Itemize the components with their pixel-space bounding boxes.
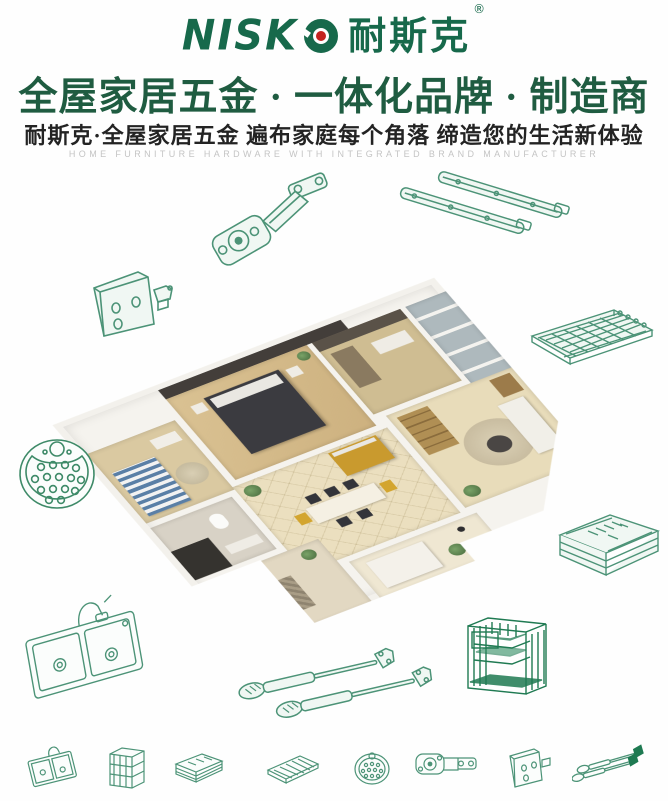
wall-bracket-illustration [78,266,180,344]
floor-lamp [456,526,467,533]
vanity [225,534,264,554]
english-tagline: HOME FURNITURE HARDWARE WITH INTEGRATED … [0,149,668,159]
shower-dark-tile [171,538,233,581]
brand-logo: NISK 耐斯克® [0,12,668,60]
kitchen-sink-illustration [20,588,160,696]
perforated-plate-illustration [12,430,102,518]
perforated-plate-icon [344,742,400,799]
plant [294,350,313,363]
patterned-rug [253,575,316,619]
registered-mark: ® [473,2,488,16]
logo-o-icon [304,19,338,53]
gas-struts-icon [572,742,646,801]
wire-shelf-illustration [524,300,658,372]
nightstand [190,402,209,415]
wire-shelf-icon [262,742,324,799]
plant [241,483,265,499]
wire-cabinet-icon [96,742,156,799]
drawer-slides-illustration [398,176,570,258]
wall-bracket-icon [498,742,556,799]
concealed-hinge-icon [412,742,478,799]
guest-bed-yellow [328,435,395,476]
toilet [206,512,231,531]
dresser [371,330,415,354]
plant [460,483,484,499]
desk [149,431,182,450]
subtitle: 耐斯克·全屋家居五金 遍布家庭每个角落 缔造您的生活新体验 [0,118,668,150]
master-bed [204,370,327,455]
plant [298,547,319,561]
gas-struts-illustration [233,650,417,728]
daybed [366,541,444,588]
logo-cjk-text: 耐斯克® [348,17,486,55]
nightstand [285,365,304,378]
sink-icon [22,742,84,799]
dining-chair-yellow [379,479,398,492]
drawer-basket-illustration [548,505,666,583]
wire-rack-organizer-illustration [452,596,558,700]
wood-cabinet [489,373,524,398]
bookshelf [397,406,460,455]
drawer-basket-icon [168,742,230,799]
dining-chair [336,516,353,528]
counter [199,580,266,648]
main-headline: 全屋家居五金 · 一体化品牌 · 制造商 [0,66,668,122]
plant [445,542,469,558]
product-icon-row [0,740,668,795]
dining-chair [356,508,373,520]
logo-latin-text: NISK [182,15,298,57]
